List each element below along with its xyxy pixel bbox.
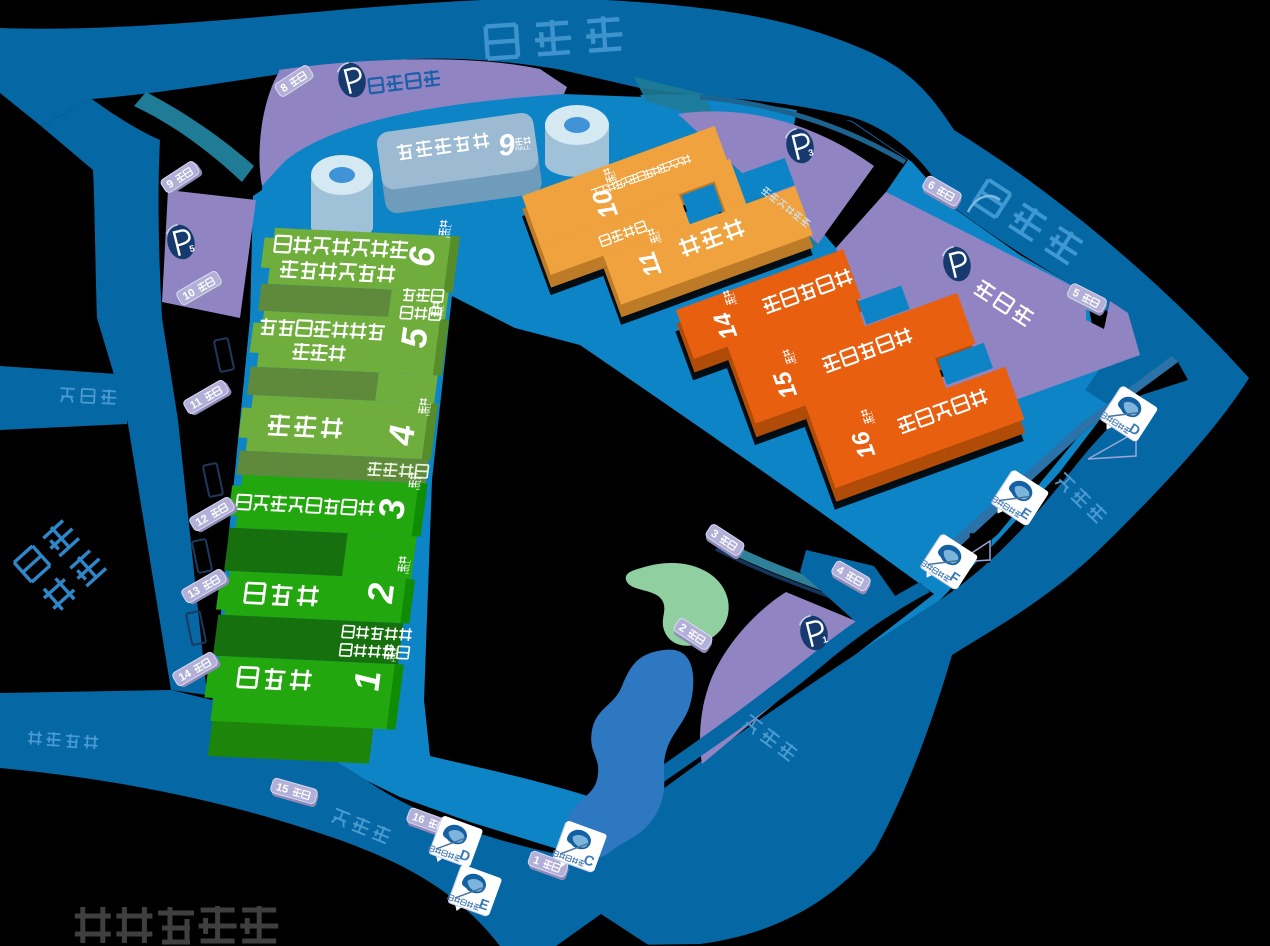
svg-text:3: 3 xyxy=(370,498,413,520)
svg-text:6: 6 xyxy=(400,245,444,268)
svg-text:1: 1 xyxy=(345,670,388,692)
svg-text:4: 4 xyxy=(380,424,424,447)
svg-text:5: 5 xyxy=(392,326,436,349)
svg-text:2: 2 xyxy=(359,582,403,605)
